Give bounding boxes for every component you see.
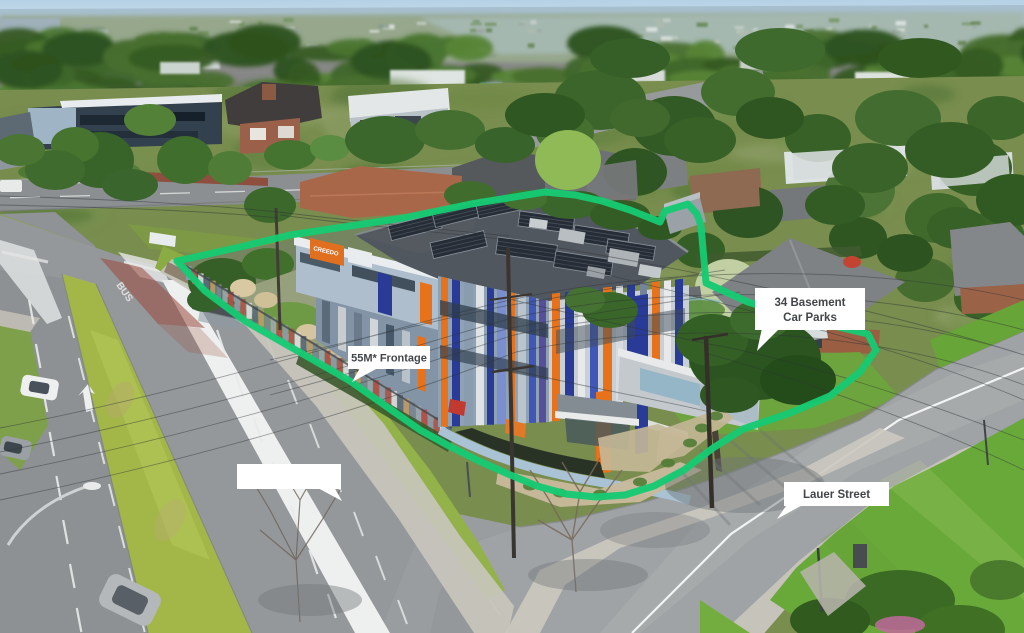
svg-text:34 Basement: 34 Basement [775, 297, 846, 309]
svg-text:Car Parks: Car Parks [783, 312, 837, 324]
svg-text:Lauer Street: Lauer Street [803, 489, 870, 501]
svg-text:55M* Frontage: 55M* Frontage [351, 353, 427, 365]
